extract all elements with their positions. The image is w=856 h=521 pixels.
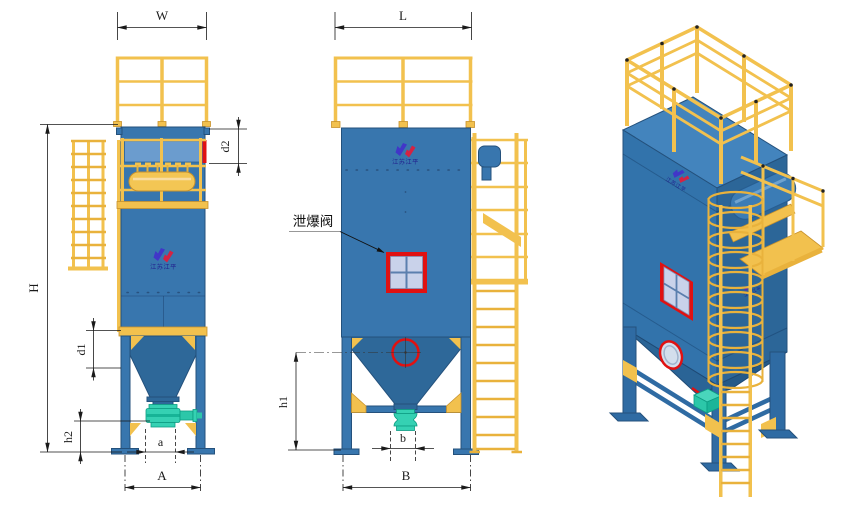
- side-platform-edge: [68, 140, 121, 332]
- dim-h1: h1: [276, 353, 341, 451]
- duct-elbow: [479, 146, 501, 167]
- iso-view: 江苏江平 江苏江平: [610, 25, 825, 497]
- side-ladder: [470, 133, 523, 452]
- dim-d2: d2: [209, 117, 247, 176]
- dim-label-d2: d2: [218, 141, 232, 153]
- dim-b: b: [372, 431, 434, 462]
- dim-label-a: a: [158, 435, 164, 449]
- brand-text-front: 江苏江平: [150, 263, 177, 271]
- dim-a: a: [127, 429, 194, 463]
- dim-label-d1: d1: [74, 344, 88, 356]
- rotary-valve-side: [394, 410, 417, 431]
- dim-W: W: [118, 8, 207, 40]
- dim-label-L: L: [399, 8, 407, 23]
- dim-B: B: [343, 455, 471, 493]
- dim-label-B: B: [402, 468, 411, 483]
- dim-h2: h2: [61, 409, 150, 464]
- top-guardrail-side: [332, 57, 475, 128]
- dim-label-W: W: [156, 8, 169, 23]
- hopper-front: [119, 327, 207, 405]
- side-view: 泄爆阀: [276, 8, 528, 493]
- hopper-neck-flange: [394, 404, 417, 410]
- drawing-canvas: 江苏江平 W H d2 d1: [0, 0, 856, 521]
- hopper-side: [342, 337, 470, 404]
- top-guardrail-front: [114, 57, 211, 127]
- dim-L: L: [335, 8, 472, 40]
- service-platform-side: [471, 137, 528, 285]
- front-view: 江苏江平 W H d2 d1: [26, 8, 247, 493]
- dim-d1: d1: [74, 318, 121, 381]
- technical-drawing: 江苏江平 W H d2 d1: [0, 0, 856, 521]
- explosion-vent-label: 泄爆阀: [293, 214, 334, 229]
- dim-label-h1: h1: [276, 396, 290, 408]
- vent-edge-marker: [203, 140, 207, 163]
- dim-label-A: A: [157, 468, 167, 483]
- explosion-vent-window: [386, 252, 427, 293]
- dim-A: A: [125, 455, 201, 493]
- dim-label-H: H: [26, 283, 41, 292]
- dim-label-b: b: [400, 431, 406, 445]
- brand-text-side: 江苏江平: [392, 158, 419, 166]
- dim-label-h2: h2: [61, 431, 75, 443]
